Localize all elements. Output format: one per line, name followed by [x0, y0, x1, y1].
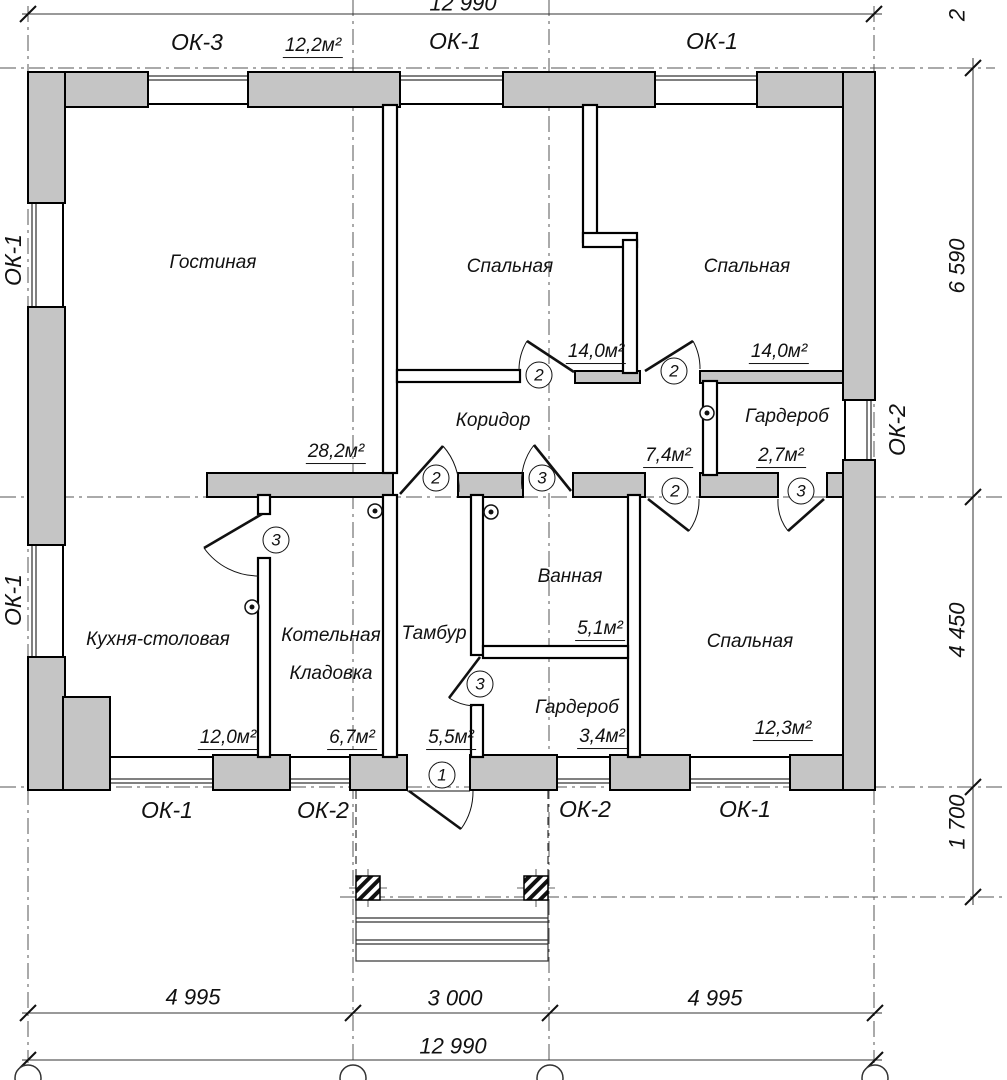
window-label-bottom-3: ОК-2: [559, 797, 611, 821]
dimension-label-right-0: 2: [945, 9, 968, 21]
room-label-corridor: Коридор: [456, 411, 531, 431]
door-number-badge-bathroom: 3: [529, 465, 556, 492]
room-label-bathroom: Ванная: [538, 567, 603, 587]
room-label-bedroom2: Спальная: [704, 257, 790, 277]
window-label-left-1: ОК-1: [1, 234, 25, 286]
room-label-bedroom3: Спальная: [707, 632, 793, 652]
area-label-extra: 12,2м²: [283, 36, 343, 58]
area-label-wardrobe1: 2,7м²: [756, 446, 806, 468]
area-label-boiler: 6,7м²: [327, 728, 377, 750]
area-label-wardrobe2: 3,4м²: [577, 727, 627, 749]
porch-layer: [349, 791, 555, 961]
window-label-bottom-1: ОК-1: [141, 798, 193, 822]
area-label-vestibule: 5,5м²: [426, 728, 476, 750]
window-label-top-1: ОК-3: [171, 30, 223, 54]
dimension-label-right-3: 1 700: [945, 794, 968, 849]
area-label-bathroom: 5,1м²: [575, 619, 625, 641]
grid-bubbles: [15, 1065, 888, 1080]
dimension-layer: [15, 6, 981, 1080]
dimension-label-bottom-total: 12 990: [419, 1034, 486, 1057]
walls-layer: [28, 72, 875, 790]
window-label-top-3: ОК-1: [686, 29, 738, 53]
door-number-badge-vestibule: 2: [423, 465, 450, 492]
floorplan-drawing: [0, 0, 1007, 1080]
area-label-kitchen: 12,0м²: [198, 728, 258, 750]
room-label-storage: Кладовка: [289, 664, 372, 684]
dimension-label-top-total: 12 990: [429, 0, 496, 15]
window-label-top-2: ОК-1: [429, 29, 481, 53]
floor-plan-canvas: Гостиная Спальная Спальная Коридор Гарде…: [0, 0, 1007, 1080]
room-label-wardrobe2: Гардероб: [535, 698, 619, 718]
room-label-wardrobe1: Гардероб: [745, 407, 829, 427]
windows-layer: [32, 76, 871, 783]
area-label-bedroom2: 14,0м²: [749, 342, 809, 364]
dimension-label-right-1: 6 590: [945, 238, 968, 293]
area-label-corridor: 7,4м²: [643, 446, 693, 468]
window-label-bottom-2: ОК-2: [297, 798, 349, 822]
area-label-bedroom1: 14,0м²: [566, 342, 626, 364]
dimension-label-right-2: 4 450: [945, 602, 968, 657]
area-label-bedroom3: 12,3м²: [753, 719, 813, 741]
door-number-badge-kitchen: 3: [263, 527, 290, 554]
window-label-right-1: ОК-2: [885, 404, 909, 456]
door-number-badge-bedroom3: 2: [662, 478, 689, 505]
room-label-kitchen: Кухня-столовая: [86, 630, 230, 650]
door-number-badge-wardrobe1: 3: [788, 478, 815, 505]
window-label-bottom-4: ОК-1: [719, 797, 771, 821]
dimension-label-bottom-2: 4 995: [687, 986, 742, 1009]
room-label-bedroom1: Спальная: [467, 257, 553, 277]
door-number-badge-wardrobe2: 3: [467, 671, 494, 698]
door-number-badge-bedroom2: 2: [661, 358, 688, 385]
window-label-left-2: ОК-1: [1, 574, 25, 626]
room-label-living: Гостиная: [170, 253, 257, 273]
door-number-badge-bedroom1: 2: [526, 362, 553, 389]
room-label-boiler: Котельная: [281, 626, 380, 646]
dimension-label-bottom-0: 4 995: [165, 985, 220, 1008]
room-label-vestibule: Тамбур: [401, 624, 466, 644]
dimension-label-bottom-1: 3 000: [427, 986, 482, 1009]
door-number-badge-entrance: 1: [429, 762, 456, 789]
area-label-living: 28,2м²: [306, 442, 366, 464]
